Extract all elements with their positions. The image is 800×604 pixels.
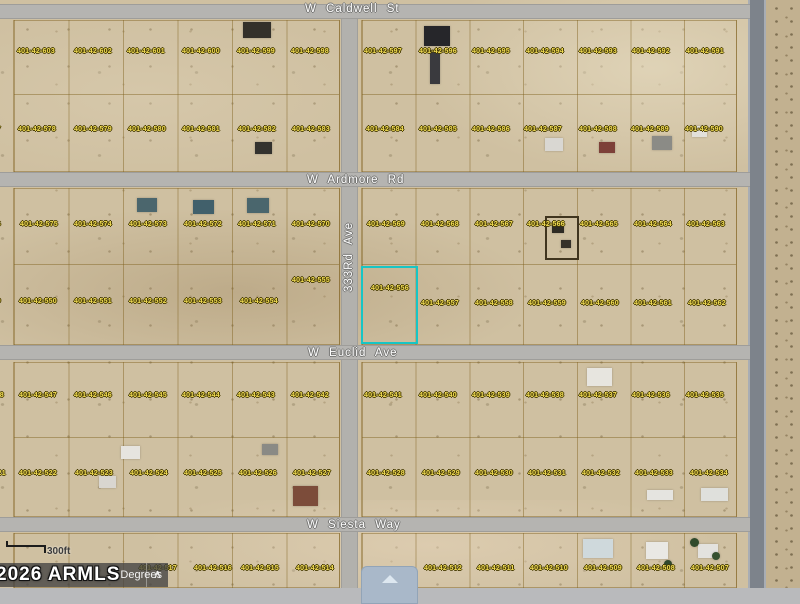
parcel-label: 401-42-577 [0, 126, 1, 133]
parcel-label: 401-42-582 [238, 126, 276, 133]
parcel-label: 401-42-592 [632, 48, 670, 55]
parcel-label: 401-42-553 [184, 298, 222, 305]
parcel-label: 401-42-529 [422, 470, 460, 477]
scale-bar [6, 545, 46, 547]
parcel-label: 401-42-581 [182, 126, 220, 133]
parcel-label: 401-42-531 [528, 470, 566, 477]
armls-watermark: 2026 ARMLS [0, 564, 120, 586]
parcel-label: 401-42-593 [579, 48, 617, 55]
parcel-label: 401-42-521 [0, 470, 6, 477]
parcel-label: 401-42-541 [364, 392, 402, 399]
parcel-label: 401-42-562 [688, 300, 726, 307]
selected-parcel-outline[interactable] [361, 266, 418, 344]
parcel-label: 401-42-539 [472, 392, 510, 399]
parcel-label: 401-42-552 [129, 298, 167, 305]
parcel-label: 401-42-565 [580, 221, 618, 228]
parcel-label: 401-42-563 [687, 221, 725, 228]
parcel-label: 401-42-600 [182, 48, 220, 55]
parcel-label: 401-42-547 [19, 392, 57, 399]
parcel-label: 401-42-591 [686, 48, 724, 55]
expand-panel-button[interactable] [361, 566, 418, 604]
parcel-label: 401-42-590 [685, 126, 723, 133]
parcel-label: 401-42-546 [74, 392, 112, 399]
parcel-label: 401-42-575 [20, 221, 58, 228]
parcel-label: 401-42-561 [634, 300, 672, 307]
parcel-label: 401-42-589 [631, 126, 669, 133]
parcel-label: 401-42-599 [237, 48, 275, 55]
chevron-up-icon [382, 575, 398, 583]
parcel-label: 401-42-535 [686, 392, 724, 399]
parcel-label: 401-42-526 [239, 470, 277, 477]
parcel-label: 401-42-507 [691, 565, 729, 572]
parcel-label: 401-42-509 [584, 565, 622, 572]
parcel-label: 401-42-532 [582, 470, 620, 477]
parcel-label: 401-42-587 [524, 126, 562, 133]
parcel-label: 401-42-538 [526, 392, 564, 399]
parcel-label: 401-42-554 [240, 298, 278, 305]
parcel-label: 401-42-586 [472, 126, 510, 133]
parcel-label: 401-42-510 [530, 565, 568, 572]
parcel-label: 401-42-511 [477, 565, 514, 572]
parcel-label: 401-42-514 [296, 565, 334, 572]
parcel-label: 401-42-528 [367, 470, 405, 477]
scale-bar-tick [44, 545, 46, 553]
parcel-label: 401-42-544 [182, 392, 220, 399]
parcel-label: 401-42-525 [184, 470, 222, 477]
parcel-label: 401-42-515 [241, 565, 279, 572]
parcel-label: 401-42-564 [634, 221, 672, 228]
parcel-label: 401-42-588 [579, 126, 617, 133]
parcel-label: 401-42-527 [293, 470, 331, 477]
parcel-label: 401-42-601 [127, 48, 165, 55]
parcel-label: 401-42-508 [637, 565, 675, 572]
parcel-label: 401-42-548 [0, 392, 4, 399]
parcel-label: 401-42-536 [632, 392, 670, 399]
scale-bar-tick [6, 541, 8, 547]
parcel-label: 401-42-571 [238, 221, 276, 228]
parcel-label: 401-42-568 [421, 221, 459, 228]
parcel-label: 401-42-542 [291, 392, 329, 399]
parcel-label: 401-42-543 [237, 392, 275, 399]
parcel-label: 401-42-523 [75, 470, 113, 477]
parcel-label: 401-42-584 [366, 126, 404, 133]
parcel-label: 401-42-570 [292, 221, 330, 228]
parcel-label: 401-42-569 [367, 221, 405, 228]
parcel-label: 401-42-585 [419, 126, 457, 133]
parcel-label: 401-42-603 [17, 48, 55, 55]
parcel-label: 401-42-557 [421, 300, 459, 307]
parcel-label: 401-42-572 [184, 221, 222, 228]
parcel-label: 401-42-534 [690, 470, 728, 477]
parcel-label: 401-42-533 [635, 470, 673, 477]
parcel-label: 401-42-540 [419, 392, 457, 399]
parcel-label: 401-42-512 [424, 565, 462, 572]
parcel-map-viewport[interactable]: W Caldwell St W Ardmore Rd W Euclid Ave … [0, 0, 800, 604]
parcel-label: 401-42-598 [291, 48, 329, 55]
parcel-label: 401-42-583 [292, 126, 330, 133]
parcel-label: 401-42-578 [18, 126, 56, 133]
parcel-label: 401-42-597 [364, 48, 402, 55]
parcel-label: 401-42-549 [0, 298, 1, 305]
parcel-label: 401-42-537 [579, 392, 617, 399]
parcel-label: 401-42-576 [0, 221, 1, 228]
parcel-label: 401-42-550 [19, 298, 57, 305]
collapse-toolbar-button[interactable]: ∧ [146, 563, 168, 587]
parcel-label: 401-42-567 [475, 221, 513, 228]
parcel-label: 401-42-559 [528, 300, 566, 307]
parcel-label: 401-42-579 [74, 126, 112, 133]
parcel-label: 401-42-551 [74, 298, 112, 305]
parcel-label: 401-42-545 [129, 392, 167, 399]
parcel-label: 401-42-524 [130, 470, 168, 477]
parcel-label: 401-42-580 [128, 126, 166, 133]
parcel-label: 401-42-566 [527, 221, 565, 228]
parcel-label: 401-42-574 [74, 221, 112, 228]
parcel-label: 401-42-594 [526, 48, 564, 55]
parcel-label: 401-42-560 [581, 300, 619, 307]
parcel-label: 401-42-522 [19, 470, 57, 477]
scale-label: 300ft [47, 546, 70, 557]
parcel-label: 401-42-602 [74, 48, 112, 55]
parcel-label: 401-42-596 [419, 48, 457, 55]
parcel-label: 401-42-558 [475, 300, 513, 307]
parcel-label: 401-42-555 [292, 277, 330, 284]
parcel-label: 401-42-530 [475, 470, 513, 477]
parcel-label: 401-42-573 [129, 221, 167, 228]
parcel-label: 401-42-595 [472, 48, 510, 55]
parcel-label: 401-42-516 [194, 565, 232, 572]
